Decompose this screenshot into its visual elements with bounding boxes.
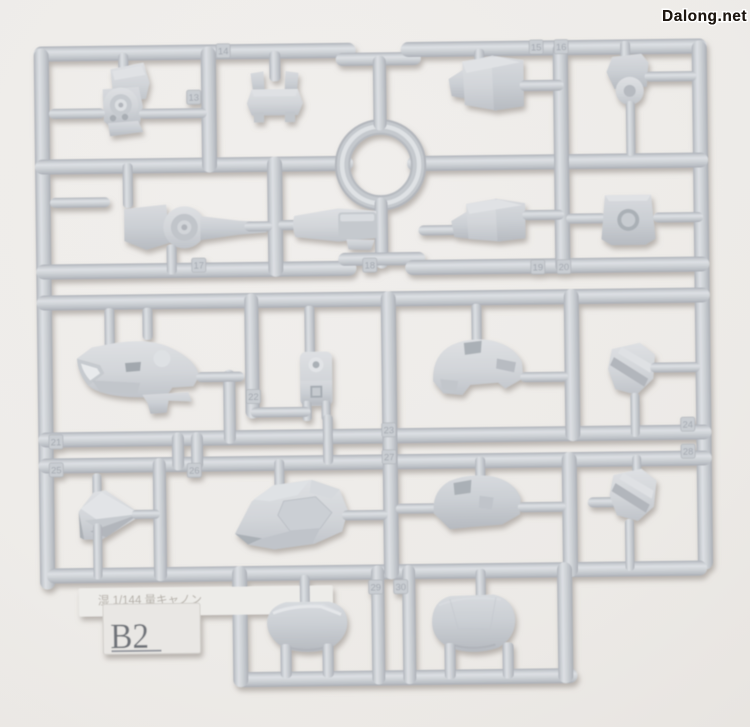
- svg-text:20: 20: [558, 262, 569, 273]
- svg-text:17: 17: [193, 261, 204, 272]
- svg-text:21: 21: [51, 437, 62, 448]
- svg-text:19: 19: [532, 262, 543, 273]
- svg-text:23: 23: [383, 425, 394, 436]
- svg-text:29: 29: [370, 582, 381, 593]
- svg-text:28: 28: [683, 447, 694, 458]
- svg-text:15: 15: [531, 42, 542, 53]
- svg-text:Dalong.net: Dalong.net: [662, 8, 747, 25]
- svg-text:24: 24: [682, 420, 693, 431]
- svg-text:16: 16: [556, 42, 567, 53]
- svg-text:30: 30: [395, 582, 406, 593]
- svg-text:13: 13: [188, 93, 199, 104]
- svg-text:26: 26: [189, 466, 200, 477]
- svg-text:27: 27: [384, 452, 395, 463]
- svg-text:18: 18: [364, 260, 375, 271]
- svg-text:25: 25: [51, 465, 62, 476]
- svg-text:22: 22: [248, 392, 259, 403]
- svg-text:14: 14: [218, 46, 229, 57]
